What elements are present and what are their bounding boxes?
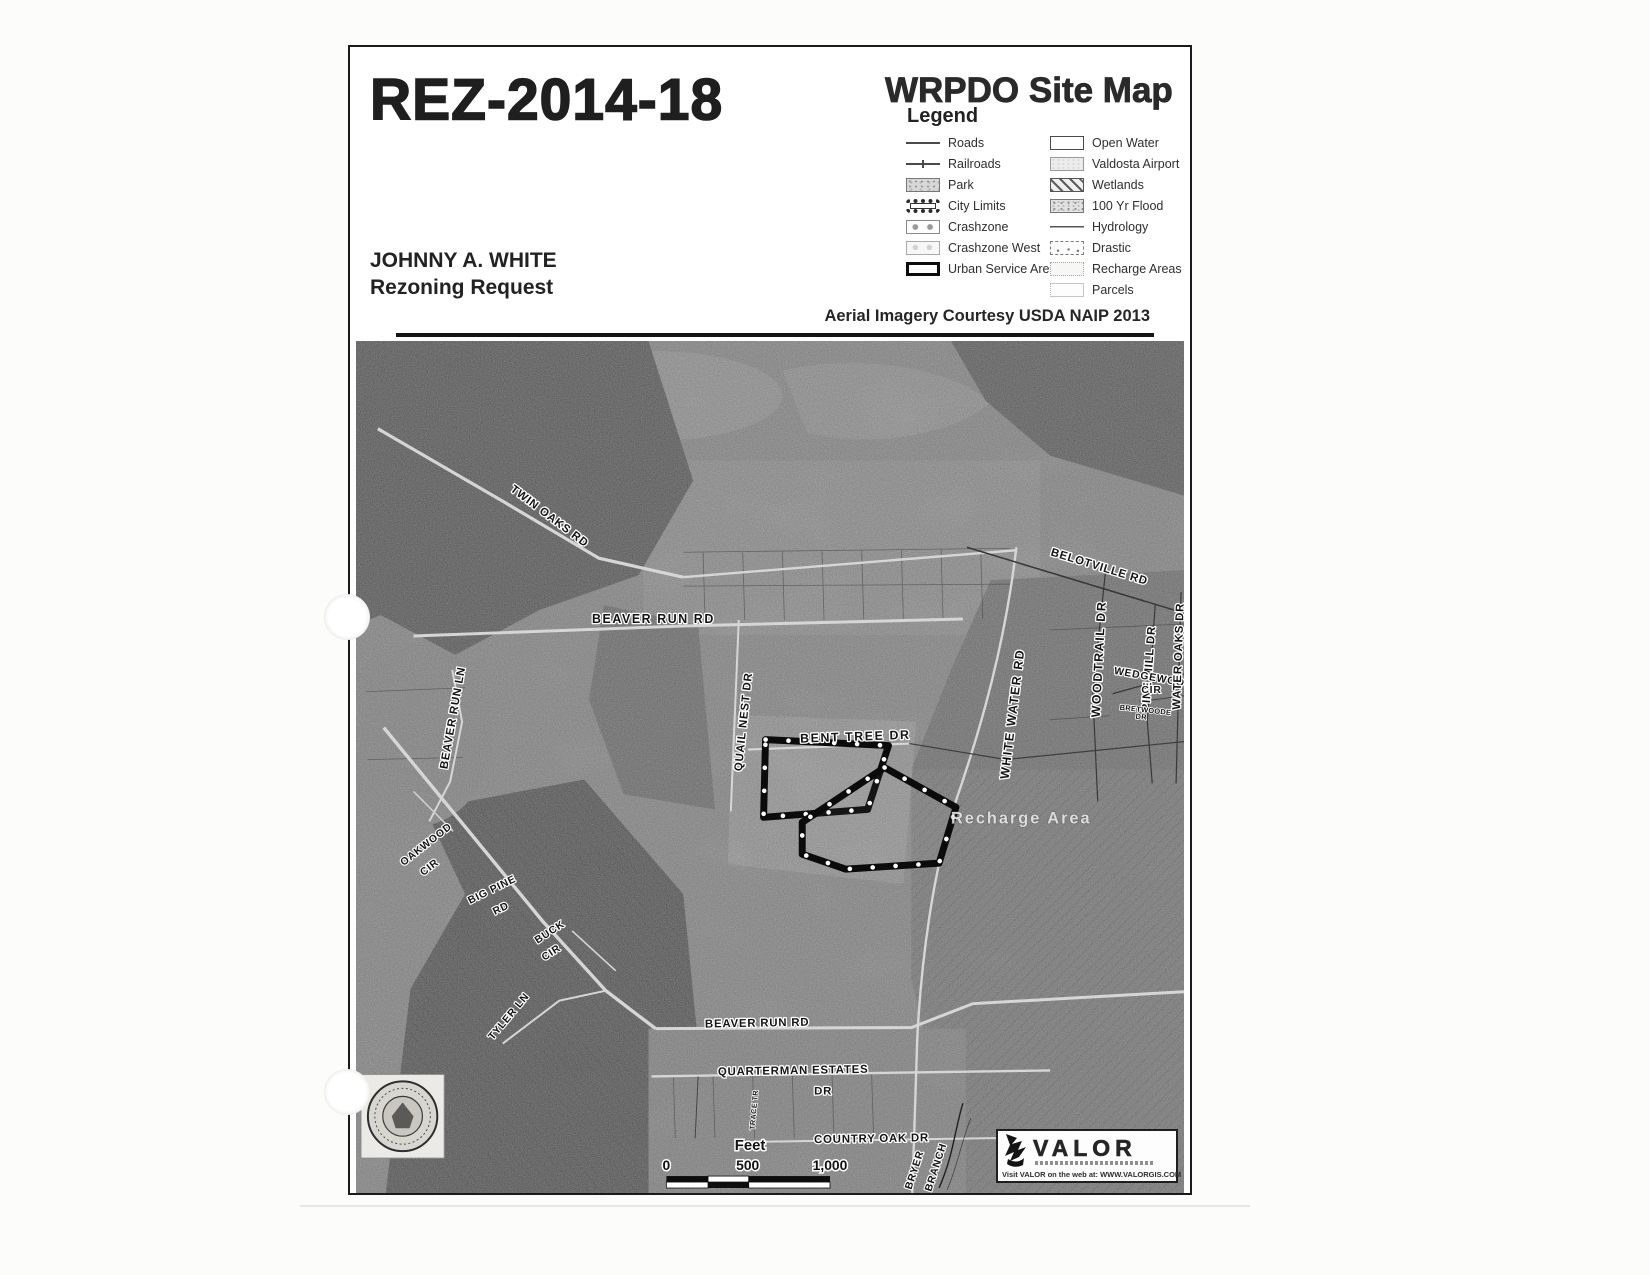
hydrology-line-swatch bbox=[1050, 220, 1084, 234]
drastic-swatch bbox=[1050, 241, 1084, 255]
scale-unit-label: Feet bbox=[735, 1138, 766, 1154]
legend-item-crashzone-west: Crashzone West bbox=[906, 240, 1056, 256]
scan-page-edge bbox=[300, 1205, 1250, 1207]
valor-name: VALOR bbox=[1033, 1136, 1153, 1160]
railroad-tick bbox=[922, 160, 924, 168]
valor-logo-icon bbox=[1002, 1133, 1028, 1167]
legend-item-city-limits: City Limits bbox=[906, 198, 1056, 214]
hole-punch-top bbox=[324, 594, 370, 640]
road-label-country-oak-dr: COUNTRY OAK DR bbox=[814, 1132, 929, 1146]
legend-item-parcels: Parcels bbox=[1050, 282, 1182, 298]
wetlands-swatch bbox=[1050, 178, 1084, 192]
legend-title: Legend bbox=[907, 105, 978, 128]
header-divider bbox=[396, 333, 1154, 337]
legend-item-valdosta-airport: Valdosta Airport bbox=[1050, 156, 1182, 172]
city-limits-swatch bbox=[906, 199, 940, 213]
road-label-quarterman-dr: DR bbox=[814, 1085, 832, 1097]
applicant-name: JOHNNY A. WHITE bbox=[370, 247, 557, 274]
airport-swatch bbox=[1050, 157, 1084, 171]
legend-item-roads: Roads bbox=[906, 135, 1056, 151]
valor-tagline-illegible bbox=[1035, 1161, 1153, 1165]
valor-logo-box: VALOR Visit VALOR on the web at: WWW.VAL… bbox=[996, 1129, 1178, 1183]
valor-web-line: Visit VALOR on the web at: WWW.VALORGIS.… bbox=[1002, 1170, 1172, 1179]
open-water-swatch bbox=[1050, 136, 1084, 150]
legend-right-column: Open Water Valdosta Airport Wetlands 100… bbox=[1050, 135, 1182, 298]
park-swatch bbox=[906, 178, 940, 192]
hole-punch-bottom bbox=[324, 1069, 370, 1115]
site-map: TWIN OAKS RD BEAVER RUN RD QUAIL NEST DR… bbox=[356, 341, 1184, 1193]
legend-item-park: Park bbox=[906, 177, 1056, 193]
case-number: REZ-2014-18 bbox=[370, 66, 723, 134]
scale-tick-1000: 1,000 bbox=[813, 1157, 848, 1173]
urban-service-area-swatch bbox=[906, 262, 940, 276]
applicant-block: JOHNNY A. WHITE Rezoning Request bbox=[370, 247, 557, 301]
legend-item-urban-service-area: Urban Service Area bbox=[906, 261, 1056, 277]
legend-item-recharge-areas: Recharge Areas bbox=[1050, 261, 1182, 277]
imagery-credit: Aerial Imagery Courtesy USDA NAIP 2013 bbox=[824, 307, 1150, 326]
scale-tick-0: 0 bbox=[663, 1157, 671, 1173]
road-label-wedgewood-cir: CIR bbox=[1141, 685, 1161, 696]
county-seal bbox=[361, 1074, 444, 1158]
rezoning-document: REZ-2014-18 WRPDO Site Map Legend Roads … bbox=[348, 45, 1192, 1195]
parcels-swatch bbox=[1050, 283, 1084, 297]
legend-item-100yr-flood: 100 Yr Flood bbox=[1050, 198, 1182, 214]
legend-item-crashzone: Crashzone bbox=[906, 219, 1056, 235]
recharge-areas-swatch bbox=[1050, 262, 1084, 276]
legend-left-column: Roads Railroads Park City Limits Crashzo… bbox=[906, 135, 1056, 277]
request-type: Rezoning Request bbox=[370, 274, 557, 301]
legend-item-railroads: Railroads bbox=[906, 156, 1056, 172]
roads-line-swatch bbox=[906, 136, 940, 150]
legend-item-open-water: Open Water bbox=[1050, 135, 1182, 151]
legend-item-wetlands: Wetlands bbox=[1050, 177, 1182, 193]
recharge-area-label: Recharge Area bbox=[951, 809, 1092, 827]
railroads-line-swatch bbox=[906, 157, 940, 171]
crashzone-swatch bbox=[906, 220, 940, 234]
legend-item-drastic: Drastic bbox=[1050, 240, 1182, 256]
aerial-map-svg: TWIN OAKS RD BEAVER RUN RD QUAIL NEST DR… bbox=[356, 341, 1184, 1193]
legend-item-hydrology: Hydrology bbox=[1050, 219, 1182, 235]
road-label-beaver-run-rd-upper: BEAVER RUN RD bbox=[592, 612, 715, 626]
road-label-bretwoode-dr: DR bbox=[1135, 712, 1148, 722]
flood-swatch bbox=[1050, 199, 1084, 213]
scanned-page: REZ-2014-18 WRPDO Site Map Legend Roads … bbox=[0, 0, 1650, 1275]
road-label-beaver-run-rd-lower: BEAVER RUN RD bbox=[705, 1017, 810, 1031]
crashzone-west-swatch bbox=[906, 241, 940, 255]
scale-tick-500: 500 bbox=[736, 1157, 759, 1173]
